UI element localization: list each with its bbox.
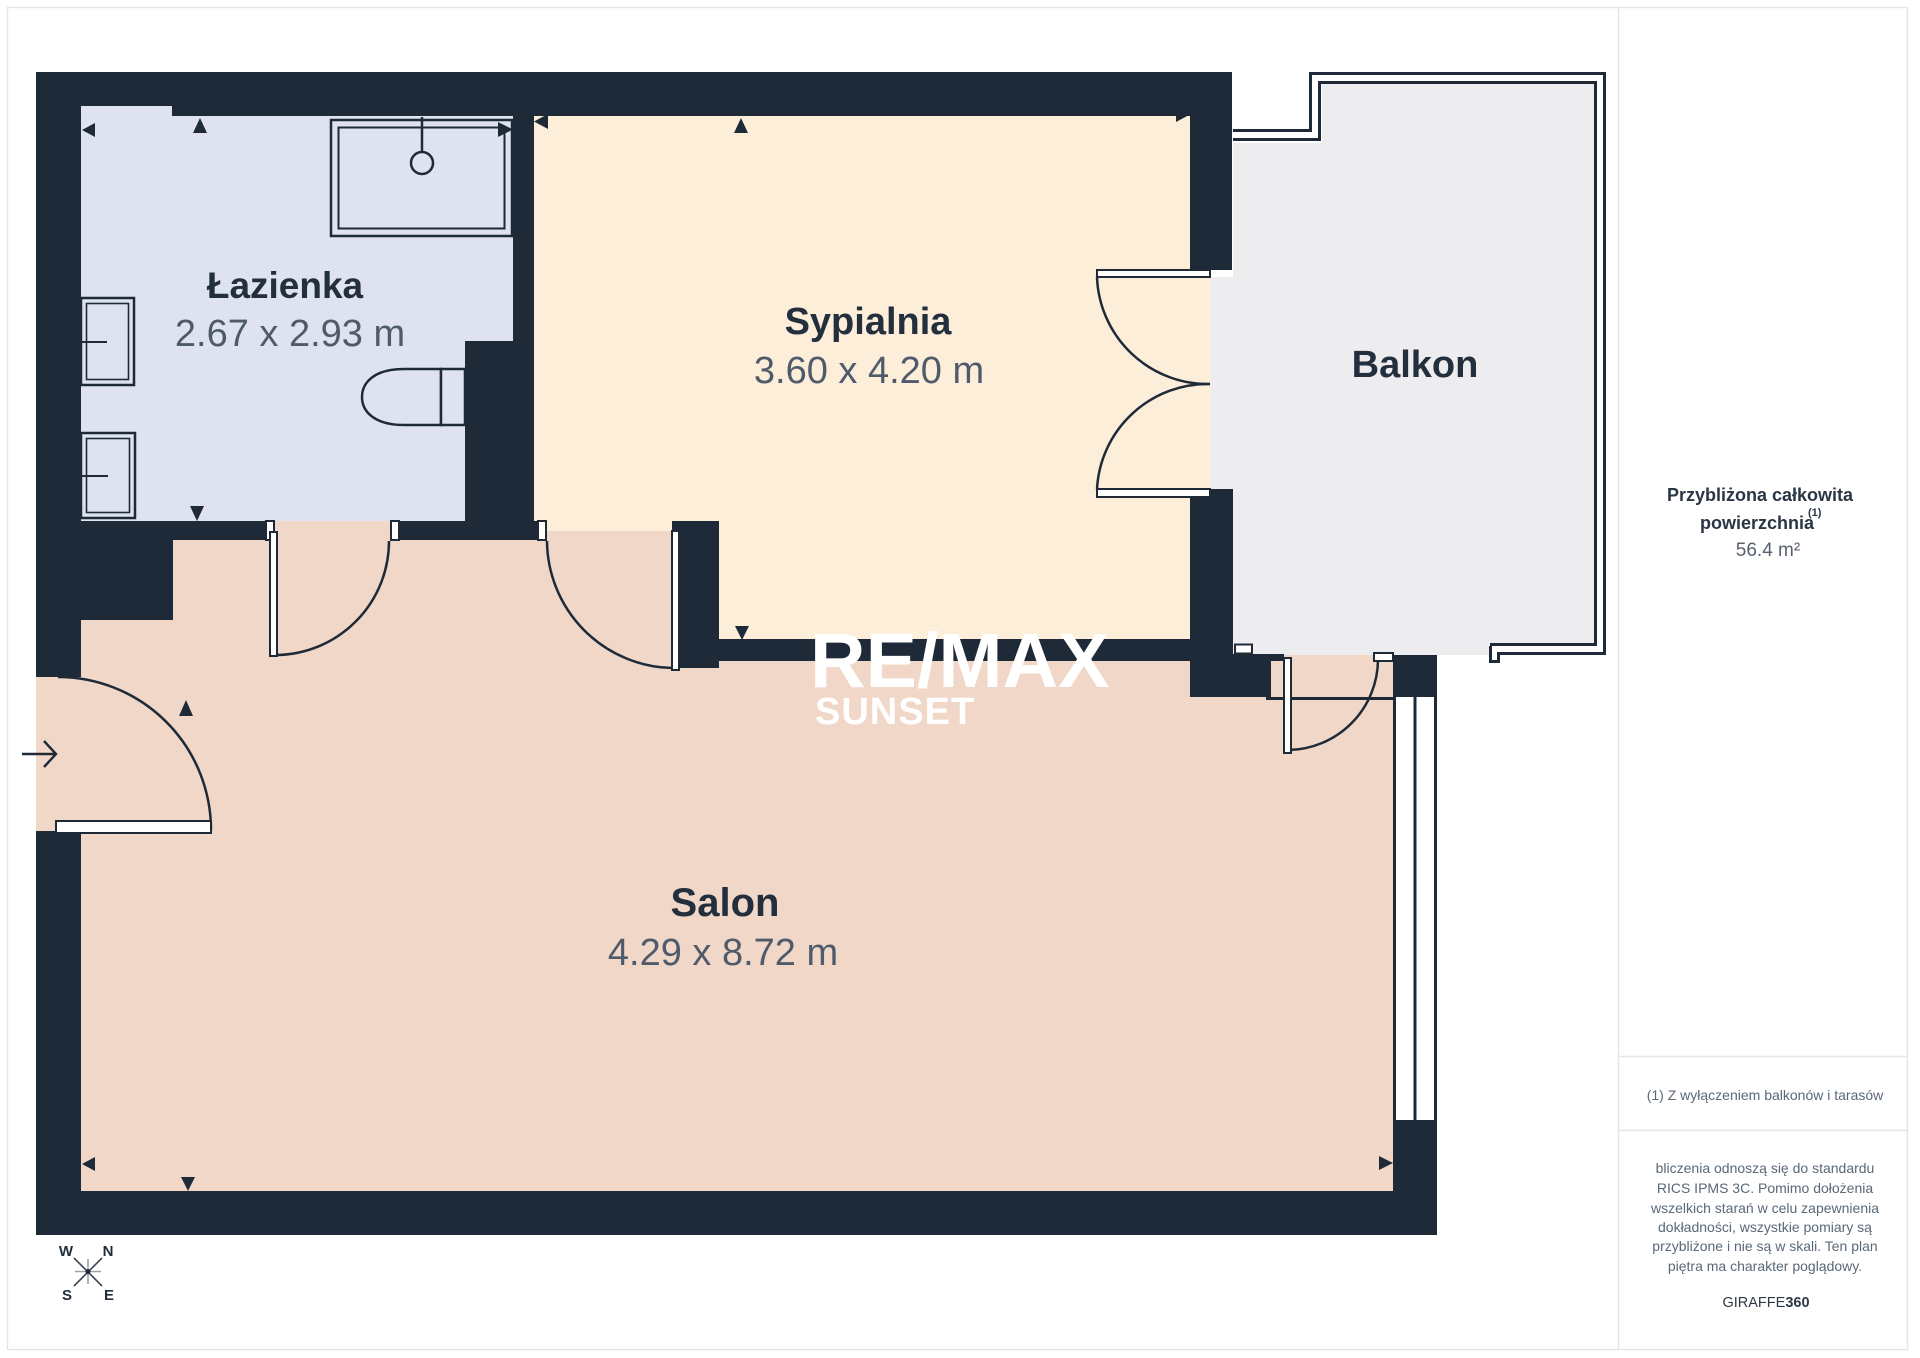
svg-text:dokładności, wszystkie pomiary: dokładności, wszystkie pomiary są (1658, 1219, 1872, 1235)
svg-text:Balkon: Balkon (1352, 344, 1479, 386)
svg-text:E: E (104, 1287, 114, 1304)
svg-text:Przybliżona całkowita: Przybliżona całkowita (1667, 485, 1854, 505)
svg-text:wszelkich starań w celu zapewn: wszelkich starań w celu zapewnienia (1650, 1200, 1879, 1216)
svg-text:56.4 m²: 56.4 m² (1736, 540, 1800, 561)
svg-text:Sypialnia: Sypialnia (785, 301, 953, 343)
svg-text:Łazienka: Łazienka (207, 265, 364, 306)
svg-text:GIRAFFE360: GIRAFFE360 (1722, 1295, 1809, 1311)
svg-text:3.60 x 4.20 m: 3.60 x 4.20 m (754, 350, 984, 392)
svg-text:(1): (1) (1808, 507, 1822, 519)
svg-text:bliczenia odnoszą się do stand: bliczenia odnoszą się do standardu (1656, 1160, 1875, 1176)
svg-text:2.67 x 2.93 m: 2.67 x 2.93 m (175, 313, 405, 355)
svg-text:RICS IPMS 3C. Pomimo dołożenia: RICS IPMS 3C. Pomimo dołożenia (1657, 1180, 1874, 1196)
svg-text:piętra ma charakter poglądowy.: piętra ma charakter poglądowy. (1668, 1258, 1862, 1274)
svg-text:(1) Z wyłączeniem balkonów i t: (1) Z wyłączeniem balkonów i tarasów (1647, 1087, 1884, 1103)
svg-text:4.29 x 8.72 m: 4.29 x 8.72 m (608, 932, 838, 974)
svg-text:Salon: Salon (671, 881, 780, 925)
svg-text:N: N (103, 1243, 114, 1260)
svg-text:powierzchnia: powierzchnia (1700, 513, 1815, 533)
svg-text:S: S (62, 1287, 72, 1304)
svg-text:W: W (59, 1243, 74, 1260)
svg-text:SUNSET: SUNSET (815, 691, 975, 733)
svg-text:przybliżone i nie są w skali.: przybliżone i nie są w skali. Ten plan (1652, 1238, 1877, 1254)
